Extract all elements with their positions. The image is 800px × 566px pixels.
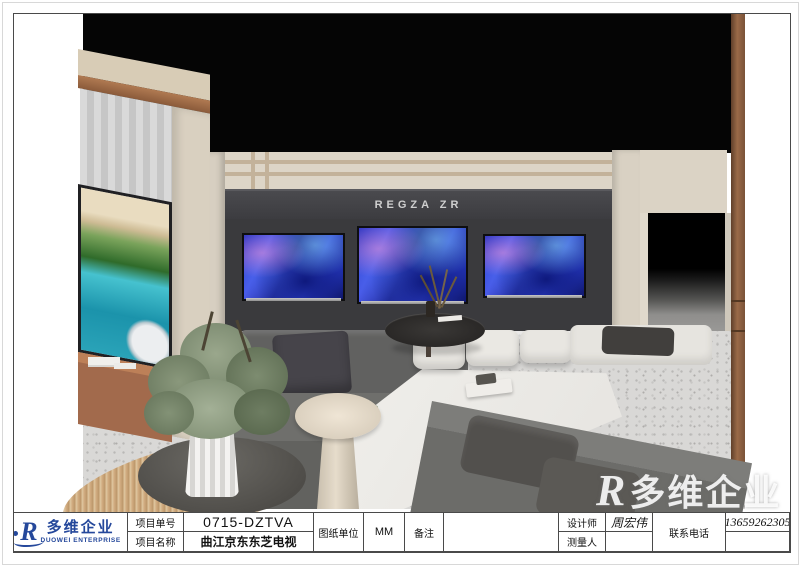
doorway-opening	[645, 213, 725, 334]
project-no-label: 项目单号	[128, 513, 184, 532]
foliage-blob	[144, 391, 194, 435]
wall-trim-line	[225, 172, 612, 176]
remark-label: 备注	[405, 513, 444, 551]
designer-value: 周宏伟	[606, 513, 653, 532]
tv-screen-art	[244, 235, 343, 299]
tv-right	[483, 234, 586, 298]
branch-vase	[426, 301, 435, 317]
surveyor-value	[606, 532, 653, 551]
pillar-seam	[731, 300, 745, 302]
wall-trim-line	[225, 160, 612, 164]
tv-soundbar	[487, 295, 582, 298]
watermark-text: 多维企业	[629, 464, 781, 516]
foliage-blob	[234, 389, 290, 435]
logo-mark-icon: R	[20, 519, 37, 545]
tv-center	[357, 226, 468, 304]
unit-value: MM	[364, 513, 405, 551]
bench-dark-cushion	[602, 326, 675, 356]
rendering-image: REGZA ZR	[14, 13, 790, 512]
company-logo: R 多维企业 DUOWEI ENTERPRISE	[14, 513, 128, 551]
logo-brand-cn: 多维企业	[47, 520, 115, 537]
designer-label: 设计师	[559, 513, 606, 532]
watermark: R 多维企业	[596, 464, 796, 516]
regza-sign-band: REGZA ZR	[225, 191, 612, 219]
wall-trim-line	[265, 152, 269, 189]
phone-value-row2	[726, 532, 789, 551]
unit-label: 图纸单位	[314, 513, 364, 551]
feature-wall: REGZA ZR	[225, 189, 612, 334]
wall-trim-line	[251, 152, 255, 189]
remark-value	[444, 513, 559, 551]
watermark-logo-mark: R	[596, 465, 625, 516]
regza-sign-text: REGZA ZR	[375, 199, 463, 211]
phone-label: 联系电话	[653, 513, 726, 551]
back-wall-header	[225, 152, 612, 189]
coffee-table	[385, 313, 485, 347]
plant-foliage	[142, 317, 302, 451]
pillar-seam	[731, 330, 745, 332]
tv-left	[242, 233, 345, 301]
project-name-label: 项目名称	[128, 532, 184, 551]
white-books-stack	[114, 363, 136, 369]
right-wall-header	[640, 150, 727, 213]
tv-screen-art	[485, 236, 584, 296]
project-no-value: 0715-DZTVA	[184, 513, 314, 532]
logo-brand-en: DUOWEI ENTERPRISE	[41, 537, 121, 544]
surveyor-label: 测量人	[559, 532, 606, 551]
project-name-value: 曲江京东东芝电视	[184, 532, 314, 551]
wood-pillar	[731, 13, 745, 469]
title-block: R 多维企业 DUOWEI ENTERPRISE 项目单号 0715-DZTVA…	[13, 512, 790, 552]
tv-soundbar	[361, 301, 463, 304]
white-ottoman	[520, 330, 572, 363]
side-table-top	[295, 393, 381, 439]
phone-value: 13659262305	[726, 513, 789, 532]
tv-soundbar	[246, 298, 341, 301]
